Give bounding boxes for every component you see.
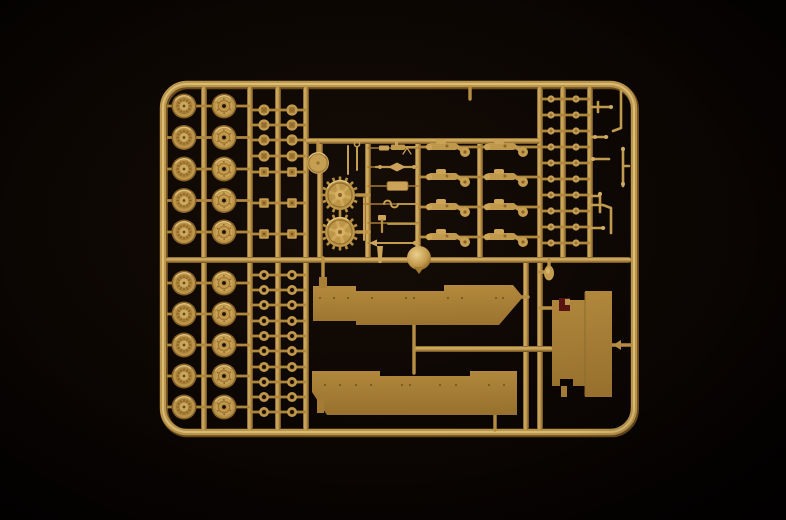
sprue-photo [0, 0, 786, 520]
photo-stage [0, 0, 786, 520]
vignette-overlay [0, 0, 786, 520]
